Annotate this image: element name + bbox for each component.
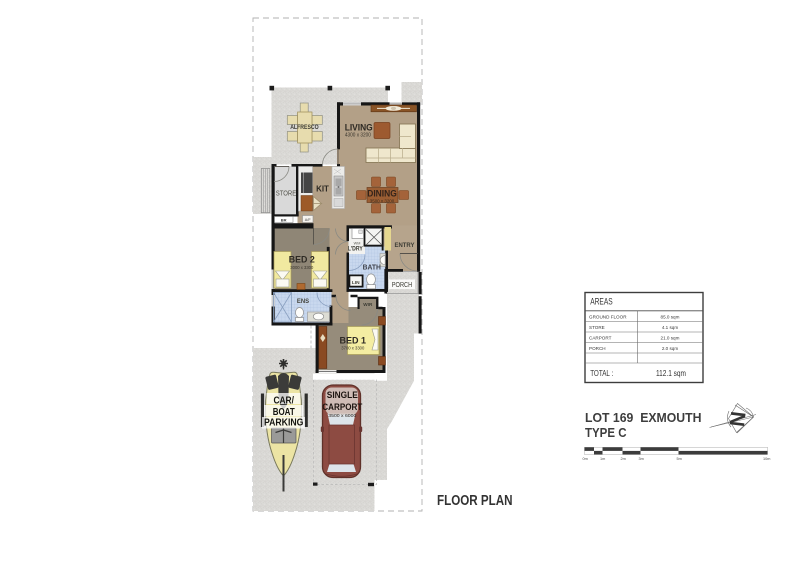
svg-text:WIR: WIR [363, 302, 373, 307]
svg-text:AREAS: AREAS [590, 296, 613, 307]
svg-text:4.1 sqm: 4.1 sqm [662, 325, 679, 330]
svg-text:3000 x 3300: 3000 x 3300 [290, 265, 313, 271]
svg-text:KIT: KIT [316, 183, 330, 193]
svg-text:BR: BR [281, 217, 287, 222]
svg-text:BED 1: BED 1 [340, 335, 367, 345]
svg-text:1m: 1m [600, 457, 605, 461]
svg-text:LIVING: LIVING [345, 123, 373, 133]
svg-text:PORCH: PORCH [589, 346, 606, 351]
svg-text:STORE: STORE [589, 325, 605, 330]
svg-text:CAR/: CAR/ [273, 395, 294, 406]
svg-text:LIN: LIN [352, 280, 360, 286]
svg-text:FLOOR PLAN: FLOOR PLAN [437, 493, 513, 509]
svg-text:N: N [725, 410, 750, 428]
svg-text:3500 x 6000: 3500 x 6000 [328, 413, 356, 418]
svg-text:5m: 5m [677, 457, 682, 461]
svg-text:BATH: BATH [363, 264, 381, 271]
svg-text:GROUND FLOOR: GROUND FLOOR [589, 314, 627, 319]
svg-text:85.0 sqm: 85.0 sqm [661, 314, 680, 319]
svg-text:CARPORT: CARPORT [322, 402, 362, 413]
svg-text:TYPE C: TYPE C [585, 426, 627, 440]
svg-text:DINING: DINING [367, 188, 397, 198]
svg-text:2.0 sqm: 2.0 sqm [662, 346, 679, 351]
svg-text:CARPORT: CARPORT [589, 335, 612, 340]
svg-text:3700 x 3300: 3700 x 3300 [341, 346, 364, 352]
svg-text:L'DRY: L'DRY [348, 247, 363, 253]
svg-text:PORCH: PORCH [392, 282, 413, 289]
svg-text:PARKING: PARKING [264, 418, 304, 429]
svg-text:WM: WM [354, 242, 361, 246]
svg-text:ENS: ENS [297, 298, 310, 305]
svg-text:2m: 2m [621, 457, 626, 461]
svg-text:112.1 sqm: 112.1 sqm [656, 368, 686, 378]
svg-text:SINGLE: SINGLE [327, 390, 359, 401]
svg-text:STORE: STORE [276, 191, 297, 198]
svg-text:ALFRESCO: ALFRESCO [290, 124, 319, 131]
svg-text:BOAT: BOAT [273, 407, 295, 418]
svg-text:4300 x 3200: 4300 x 3200 [345, 132, 371, 138]
svg-text:21.0 sqm: 21.0 sqm [661, 335, 680, 340]
svg-text:0m: 0m [583, 457, 588, 461]
svg-text:3500 x 3200: 3500 x 3200 [370, 199, 395, 205]
svg-text:LOT 169 EXMOUTH: LOT 169 EXMOUTH [585, 411, 702, 425]
svg-text:A/F: A/F [305, 218, 312, 222]
svg-text:3m: 3m [639, 457, 644, 461]
svg-text:ENTRY: ENTRY [395, 242, 416, 249]
svg-text:10m: 10m [763, 457, 770, 461]
svg-text:TOTAL :: TOTAL : [590, 368, 613, 378]
svg-text:BED 2: BED 2 [289, 255, 315, 265]
